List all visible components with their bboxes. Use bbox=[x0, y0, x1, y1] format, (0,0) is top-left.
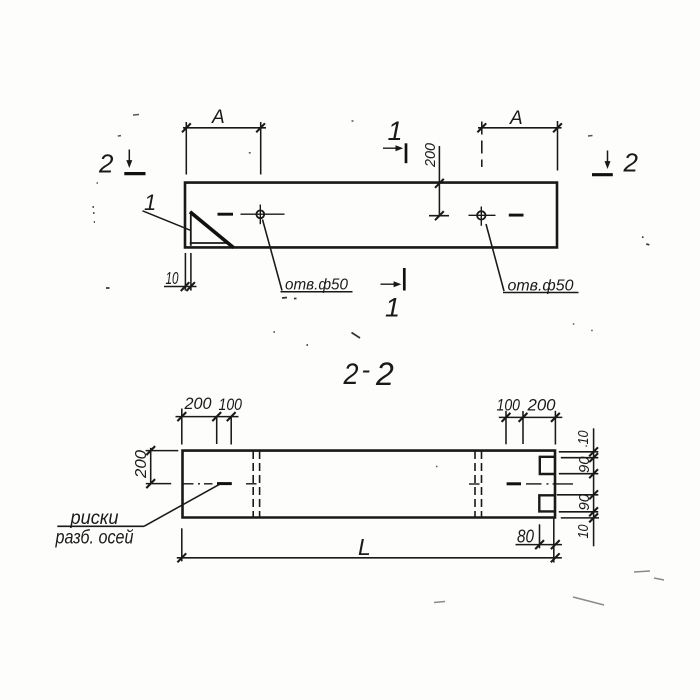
svg-text:разб. осей: разб. осей bbox=[55, 528, 134, 549]
svg-text:отв.ф50: отв.ф50 bbox=[285, 277, 348, 294]
svg-text:90: 90 bbox=[576, 456, 593, 473]
svg-text:отв.ф50: отв.ф50 bbox=[508, 278, 574, 295]
svg-text:200: 200 bbox=[526, 397, 556, 415]
svg-text:-: - bbox=[362, 355, 371, 385]
svg-text:200: 200 bbox=[133, 450, 150, 479]
svg-text:10: 10 bbox=[166, 268, 179, 288]
svg-text:100: 100 bbox=[497, 397, 521, 415]
svg-text:риски: риски bbox=[70, 508, 119, 529]
svg-text:A: A bbox=[211, 107, 225, 128]
svg-text:10: 10 bbox=[575, 430, 592, 445]
svg-text:2: 2 bbox=[375, 356, 394, 392]
svg-text:1: 1 bbox=[385, 293, 400, 323]
svg-text:1: 1 bbox=[144, 190, 156, 215]
svg-text:2: 2 bbox=[98, 149, 114, 179]
svg-text:100: 100 bbox=[219, 396, 243, 414]
svg-text:10: 10 bbox=[575, 524, 592, 539]
svg-text:80: 80 bbox=[517, 527, 534, 547]
svg-text:L: L bbox=[358, 534, 371, 560]
svg-text:2: 2 bbox=[343, 358, 359, 391]
svg-text:90: 90 bbox=[576, 493, 593, 510]
svg-text:2: 2 bbox=[623, 148, 639, 178]
svg-text:200: 200 bbox=[184, 395, 213, 413]
svg-text:A: A bbox=[509, 108, 523, 129]
svg-text:1: 1 bbox=[388, 116, 403, 146]
svg-text:200: 200 bbox=[422, 142, 439, 168]
